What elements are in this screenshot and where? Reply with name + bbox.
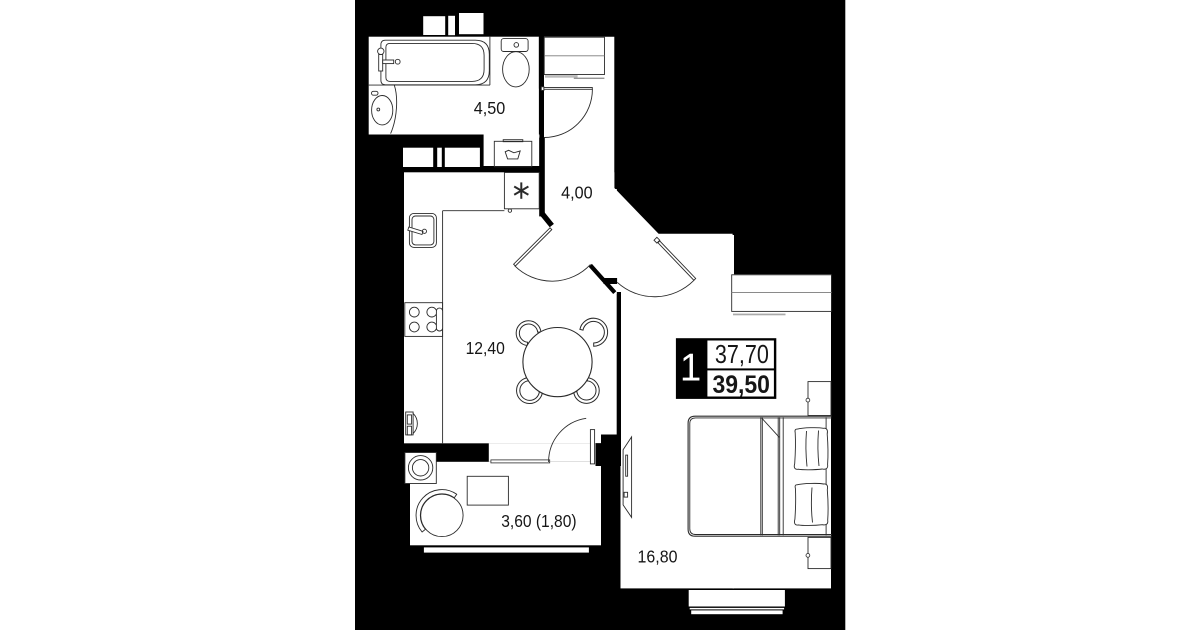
svg-text:12,40: 12,40	[466, 338, 505, 358]
svg-text:4,00: 4,00	[561, 183, 593, 203]
svg-text:4,50: 4,50	[474, 98, 506, 118]
svg-text:39,50: 39,50	[712, 371, 770, 399]
svg-text:37,70: 37,70	[715, 341, 769, 369]
svg-text:16,80: 16,80	[638, 547, 678, 567]
svg-text:1: 1	[680, 347, 701, 390]
svg-text:3,60 (1,80): 3,60 (1,80)	[501, 511, 576, 531]
